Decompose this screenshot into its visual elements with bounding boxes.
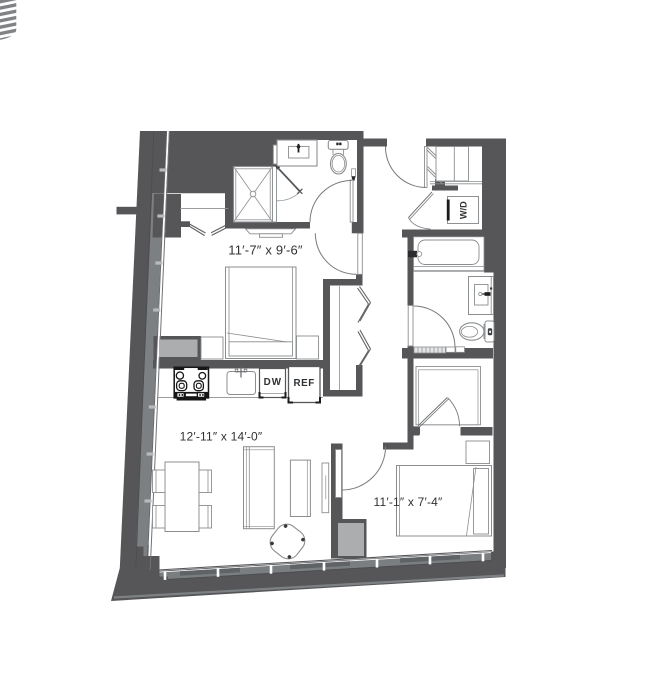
svg-text:REF: REF xyxy=(293,378,314,389)
svg-text:11′-7″ x 9′-6″: 11′-7″ x 9′-6″ xyxy=(228,243,303,258)
svg-text:12′-11″ x 14′-0″: 12′-11″ x 14′-0″ xyxy=(180,430,263,444)
svg-text:W/D: W/D xyxy=(458,201,468,219)
svg-text:DW: DW xyxy=(264,377,282,388)
svg-text:11′-1″ x 7′-4″: 11′-1″ x 7′-4″ xyxy=(374,495,443,509)
